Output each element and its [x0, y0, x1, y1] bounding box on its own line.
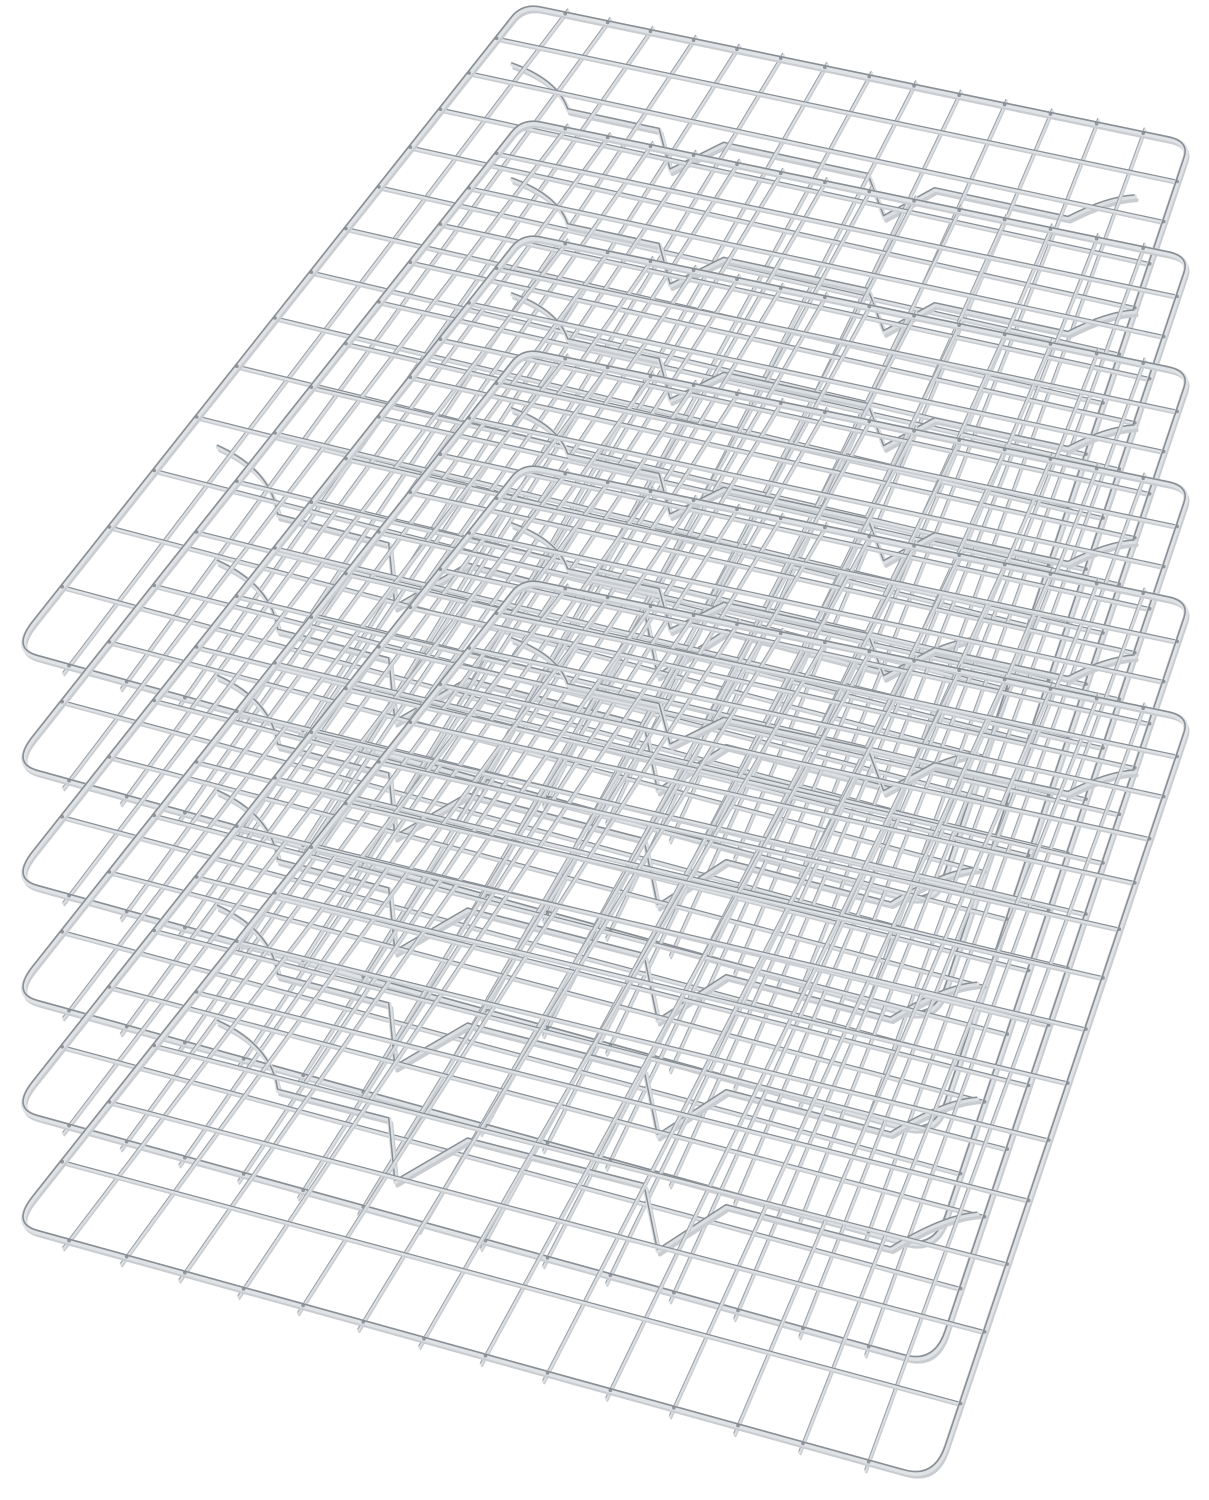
cooling-rack-stack-illustration [0, 0, 1209, 1500]
product-photo [0, 0, 1209, 1500]
